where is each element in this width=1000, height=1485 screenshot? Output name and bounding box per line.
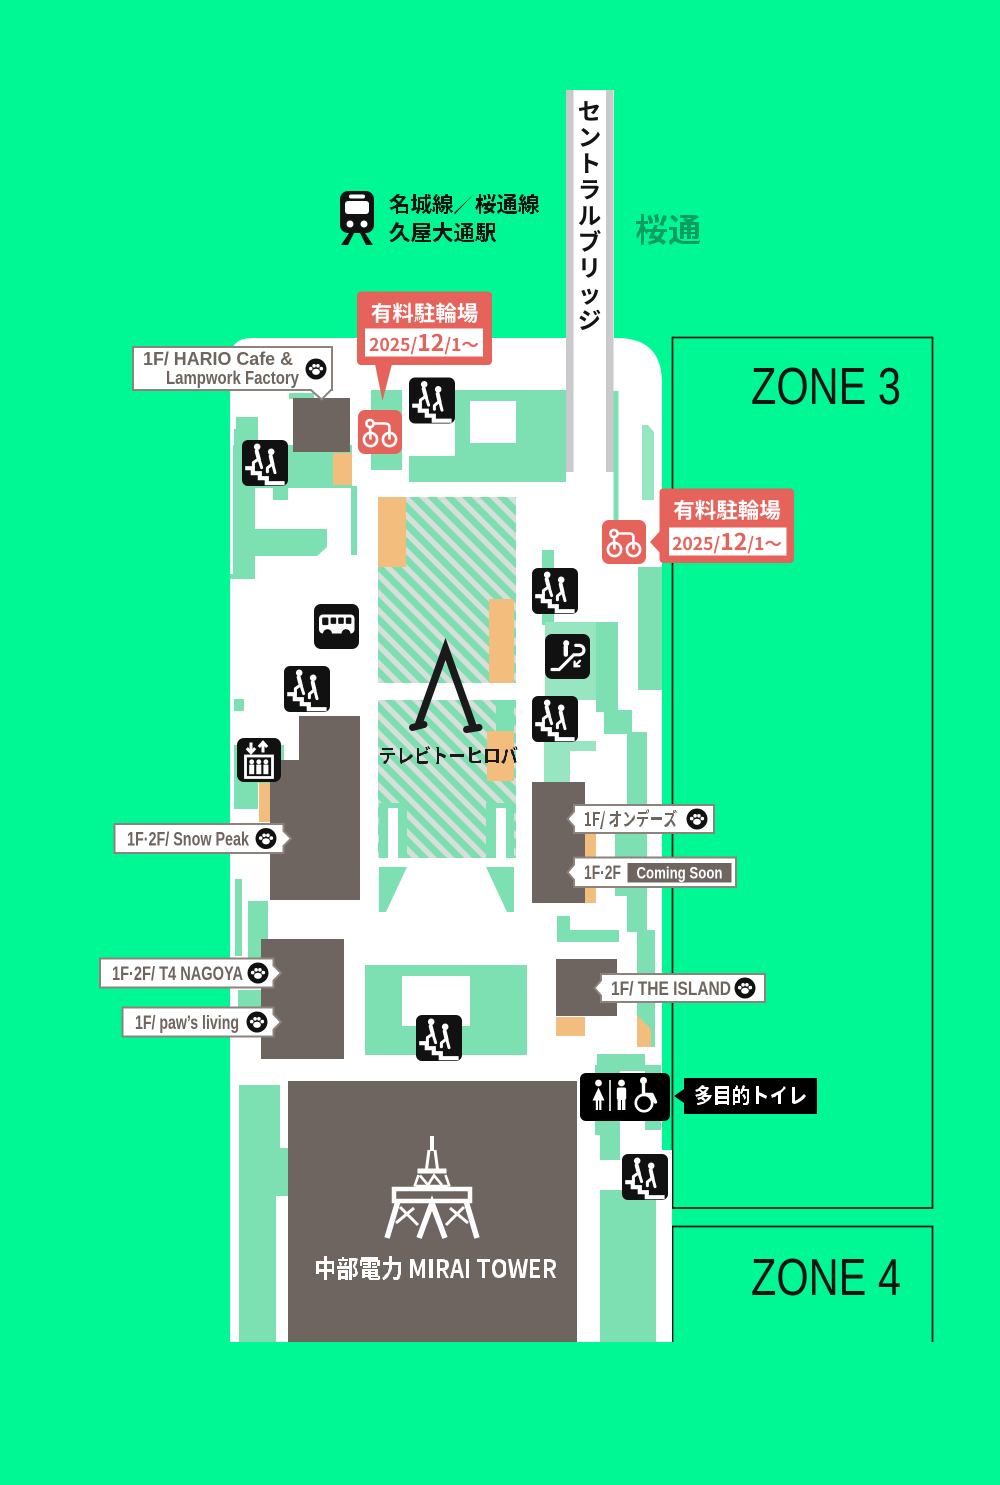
svg-text:1F/ HARIO Cafe &: 1F/ HARIO Cafe & <box>143 349 293 369</box>
svg-text:ZONE 4: ZONE 4 <box>751 1249 901 1307</box>
svg-text:1F·2F: 1F·2F <box>584 862 621 884</box>
svg-text:ZONE 3: ZONE 3 <box>751 358 901 416</box>
svg-text:1F/ paw’s living: 1F/ paw’s living <box>135 1012 239 1034</box>
svg-text:1F/ THE ISLAND: 1F/ THE ISLAND <box>611 978 731 1000</box>
svg-text:Coming Soon: Coming Soon <box>637 864 723 883</box>
svg-text:1F·2F/ T4 NAGOYA: 1F·2F/ T4 NAGOYA <box>112 963 243 985</box>
svg-text:Lampwork Factory: Lampwork Factory <box>166 368 299 388</box>
svg-text:1F·2F/ Snow Peak: 1F·2F/ Snow Peak <box>127 829 249 851</box>
